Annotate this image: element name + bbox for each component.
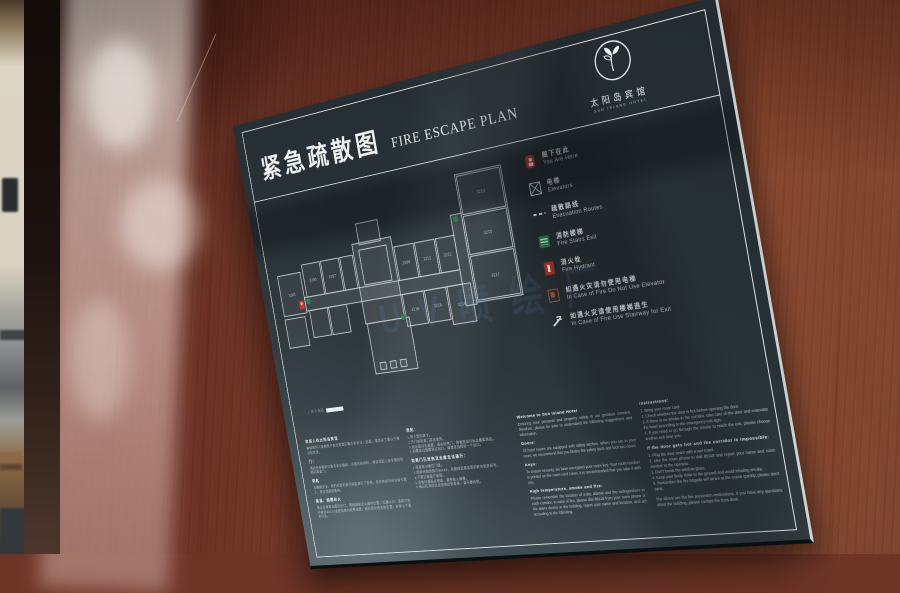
plan-column [390,361,397,369]
logo-flower-icon [589,33,636,86]
furniture-shape [0,452,22,460]
furniture-shape [0,508,26,554]
door-hinge [2,178,18,212]
door-edge-shadow [24,0,60,554]
room-background-sliver [0,0,26,554]
fire-stairs-marker [453,216,459,222]
notice-col-en-2: Instructions: 1. Bring your room card. 2… [639,388,790,538]
plan-column [400,359,407,367]
furniture-shape [0,464,22,470]
plan-column [380,362,387,370]
evacuation-route-icon [532,208,545,216]
notice-col-zh-2: 须知： 1.带上您的房卡。 2.开门前检查门是否发热。 3.如走廊内无烟雾，请关… [406,417,531,551]
furniture-shape [0,330,26,340]
elevator-icon [528,181,542,196]
notice-col-zh-1: 欢迎入住太阳岛宾馆 确保您的人身和财产安全是我们最大的关注，因此，请务必了解以下… [305,429,420,557]
fire-stairs-icon [537,234,551,248]
window-reflection [86,40,156,150]
window-reflection [120,180,200,270]
notice-col-en-1: Welcome to Sun Island Hotel Ensuring you… [516,403,653,545]
you-are-here-icon [523,154,537,169]
plan-room [355,220,380,245]
window-reflection [70,300,130,420]
